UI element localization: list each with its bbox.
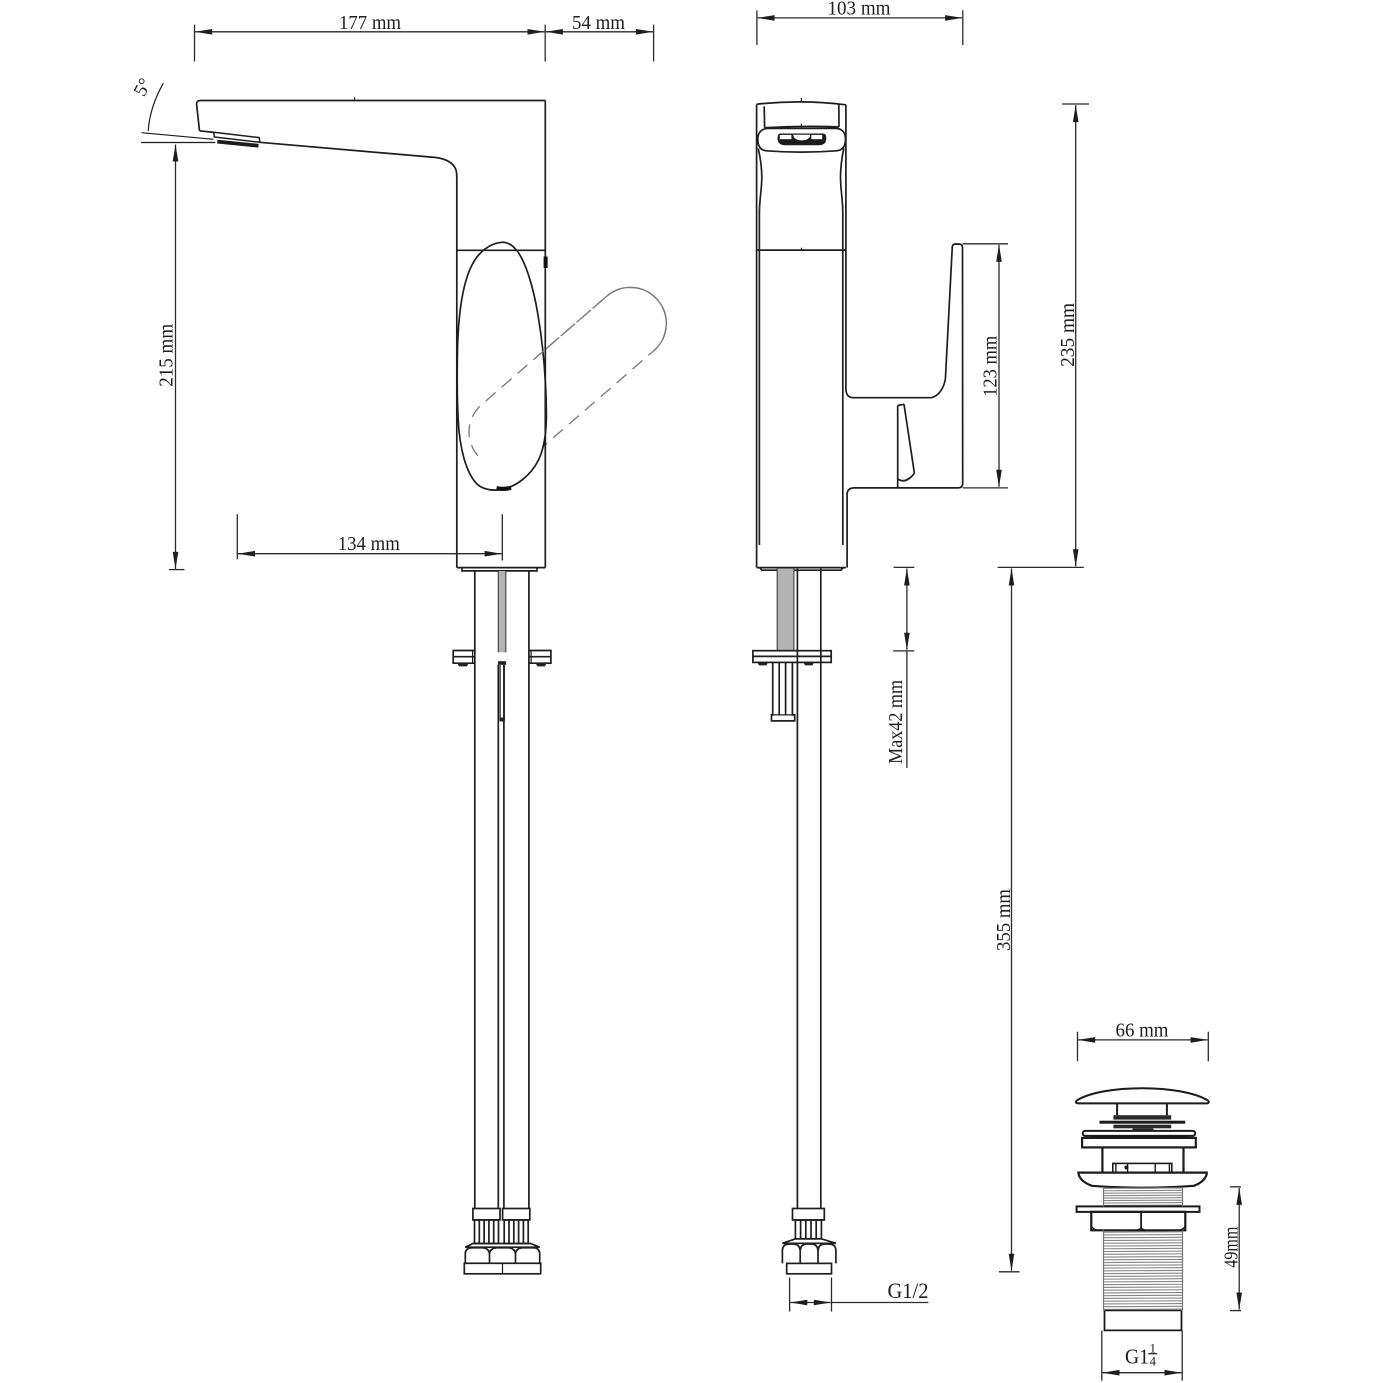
svg-text:G1: G1: [1125, 1345, 1149, 1369]
svg-text:5°: 5°: [130, 75, 157, 100]
svg-text:123 mm: 123 mm: [980, 335, 1002, 396]
svg-text:215 mm: 215 mm: [156, 323, 178, 386]
svg-text:103 mm: 103 mm: [828, 0, 891, 19]
svg-text:66 mm: 66 mm: [1116, 1020, 1169, 1042]
svg-text:235 mm: 235 mm: [1057, 302, 1079, 366]
svg-text:G1/2: G1/2: [888, 1278, 929, 1303]
svg-text:177 mm: 177 mm: [339, 12, 401, 34]
svg-text:134 mm: 134 mm: [338, 533, 400, 555]
svg-text:Max42 mm: Max42 mm: [885, 680, 907, 764]
svg-text:49mm: 49mm: [1220, 1226, 1242, 1267]
svg-text:4: 4: [1150, 1354, 1157, 1369]
svg-text:54 mm: 54 mm: [572, 12, 625, 34]
svg-text:355 mm: 355 mm: [993, 889, 1015, 951]
